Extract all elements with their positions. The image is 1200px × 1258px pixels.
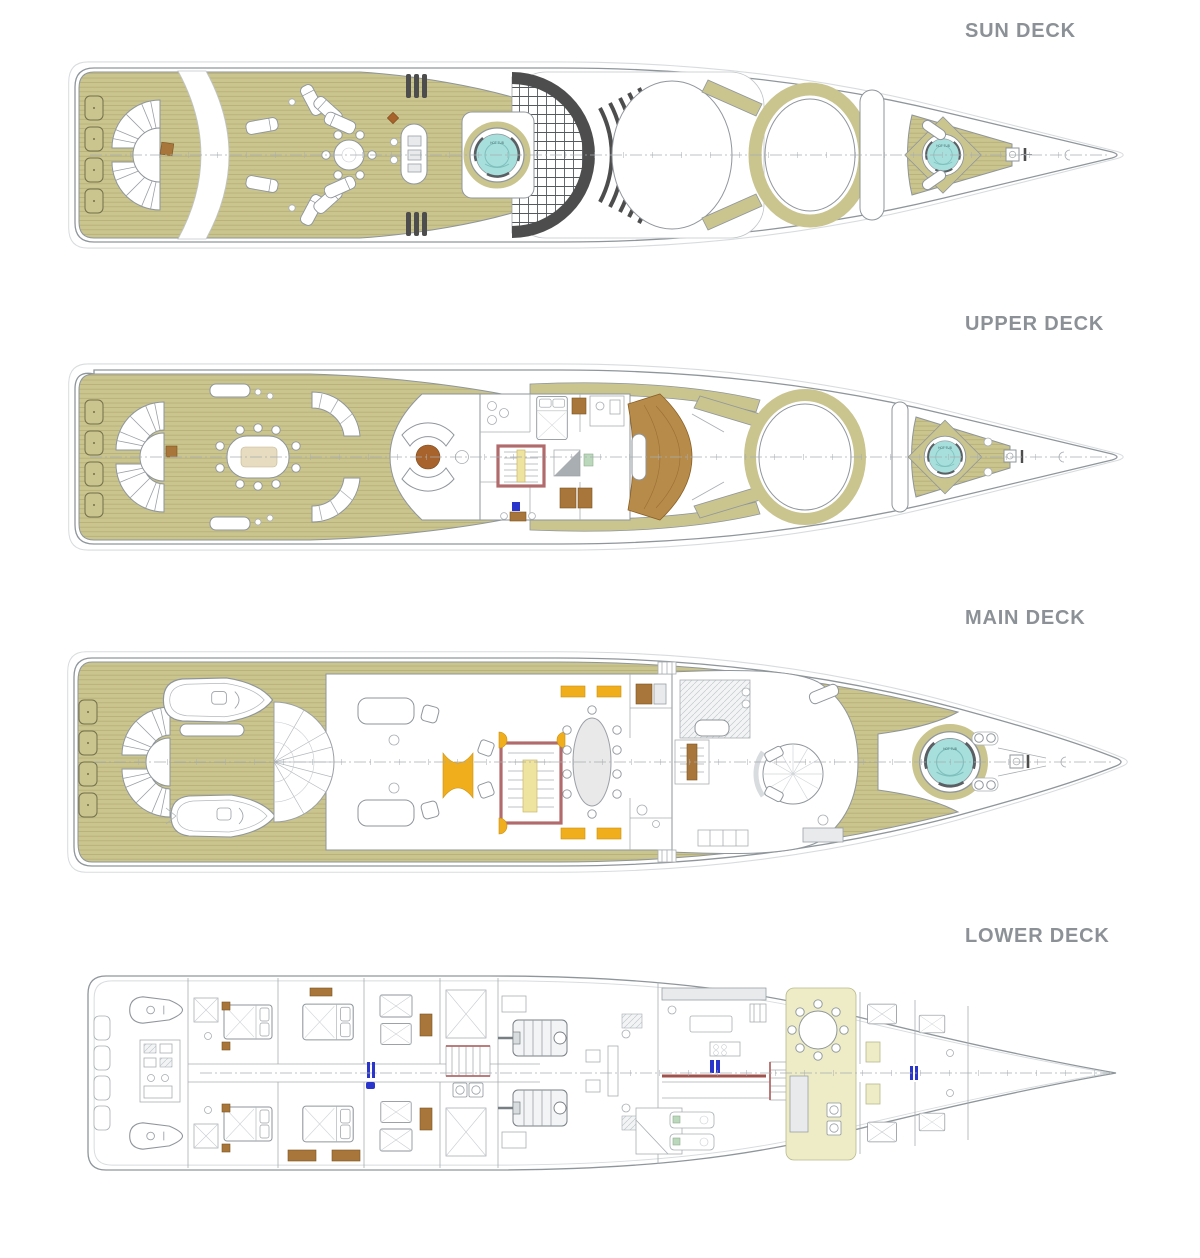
- main-deck-plan: HOT TUB: [68, 652, 1128, 872]
- deck-plans-drawing: HOT TUB HOT TUB: [0, 0, 1200, 1258]
- upper-deck-plan: HOT TUB: [69, 364, 1124, 550]
- sun-deck-plan: HOT TUB HOT TUB: [69, 62, 1124, 248]
- lower-deck-plan: [88, 976, 1116, 1170]
- svg-text:HOT TUB: HOT TUB: [938, 446, 952, 450]
- page: SUN DECK UPPER DECK MAIN DECK LOWER DECK: [0, 0, 1200, 1258]
- svg-text:HOT TUB: HOT TUB: [943, 747, 957, 751]
- hot-tub-label: HOT TUB: [490, 141, 504, 145]
- main-stairwell: [499, 732, 565, 834]
- svg-text:HOT TUB: HOT TUB: [936, 144, 950, 148]
- owner-bathroom: [680, 680, 750, 738]
- crew-mess: [786, 988, 856, 1160]
- upper-stairwell: [498, 446, 544, 486]
